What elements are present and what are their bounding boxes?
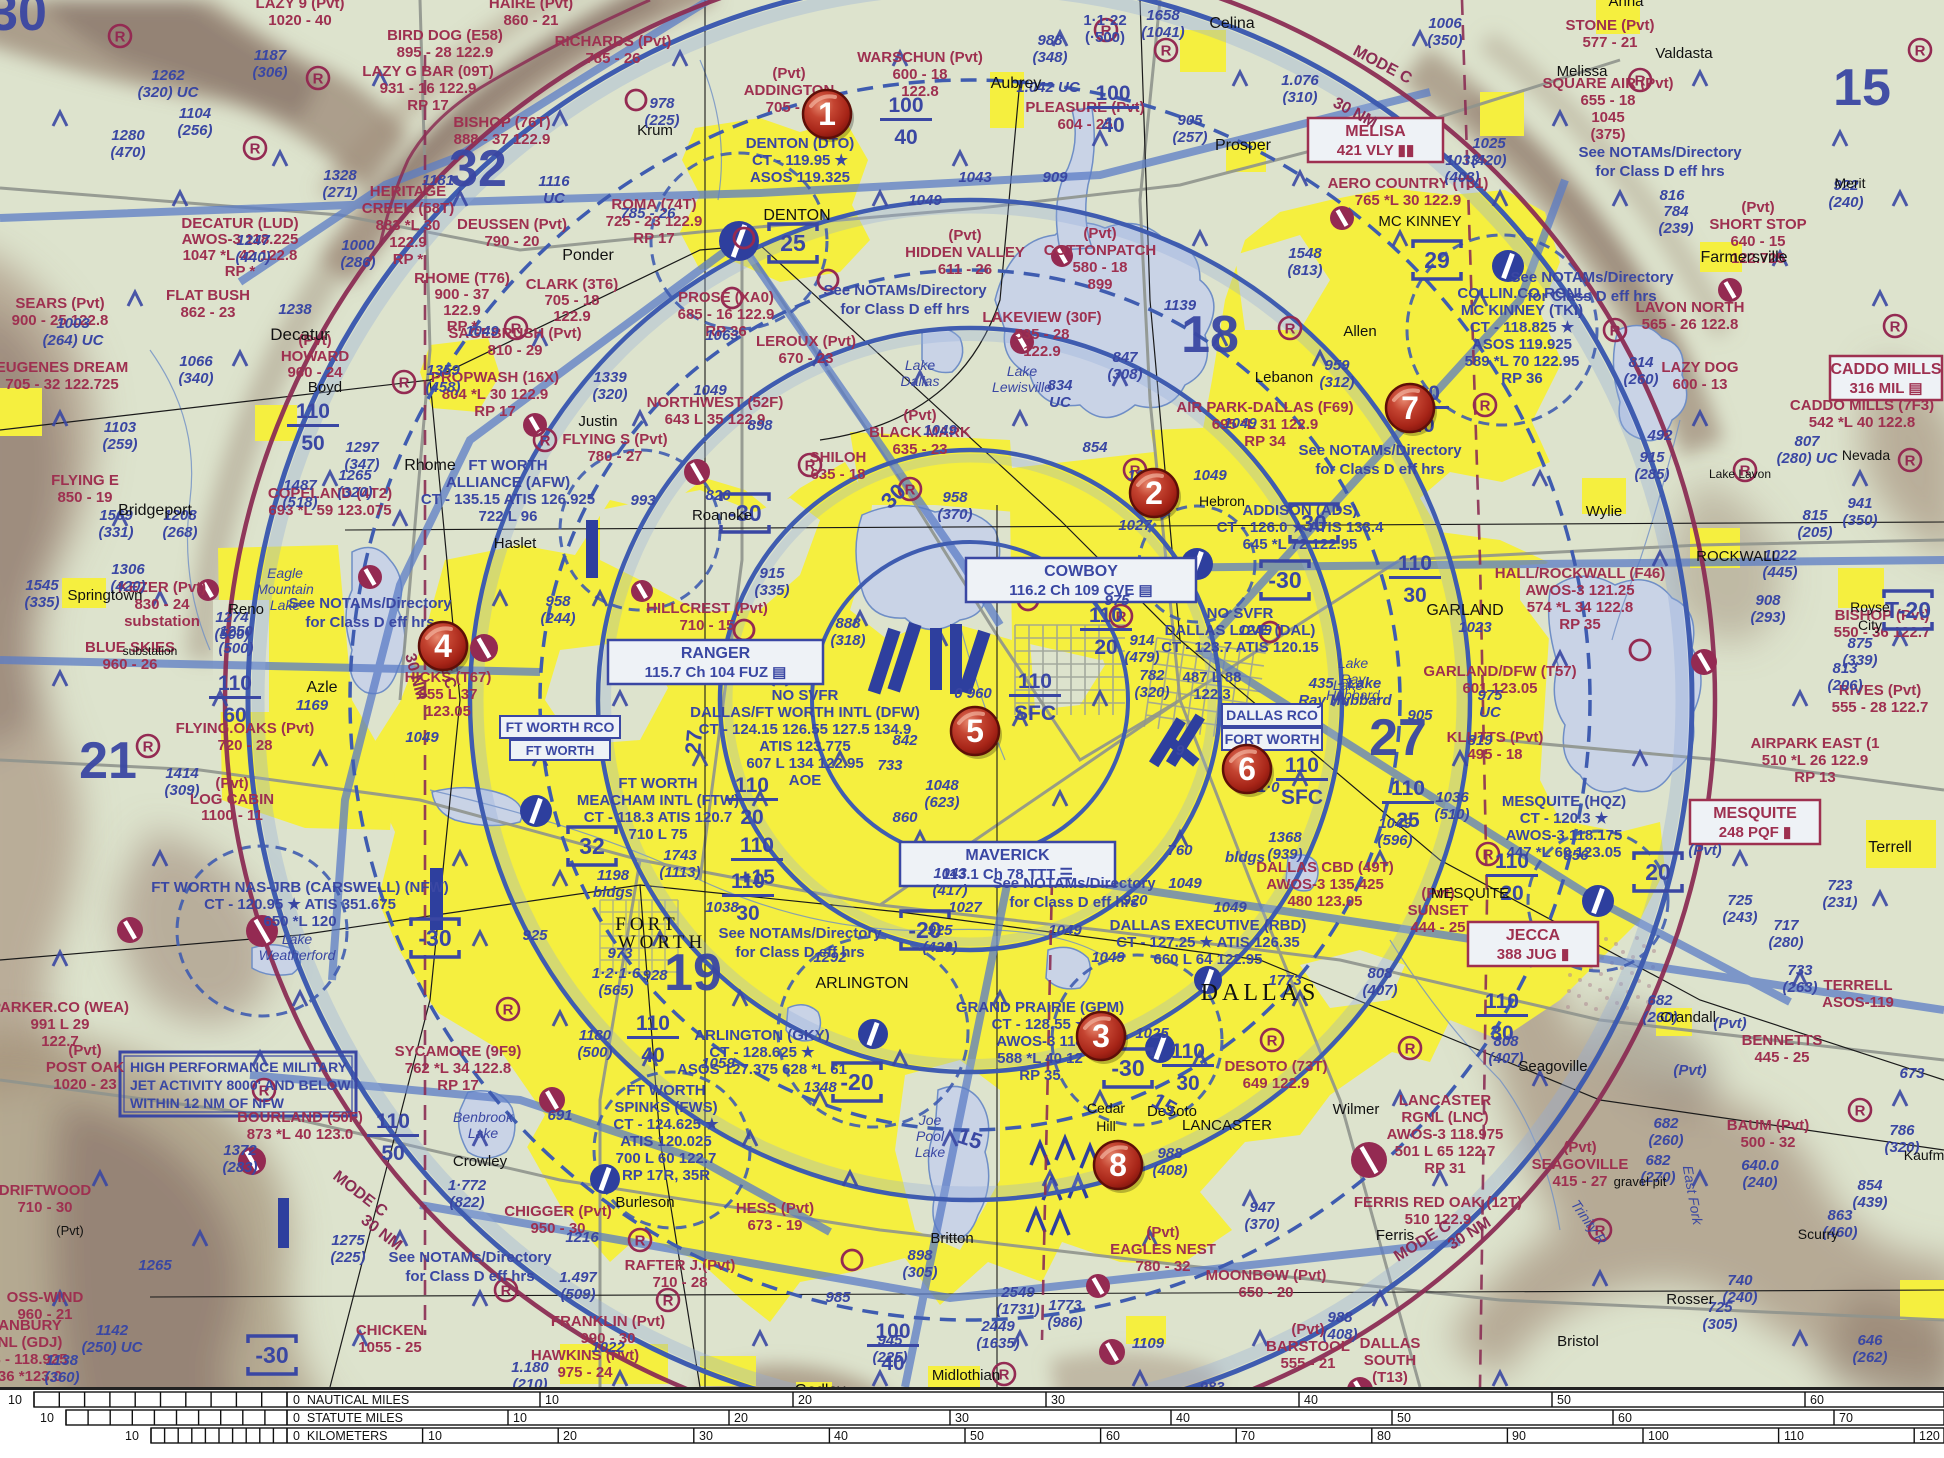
- svg-text:LAKEVIEW (30F): LAKEVIEW (30F): [982, 309, 1101, 326]
- svg-text:STONE (Pvt): STONE (Pvt): [1566, 17, 1655, 34]
- svg-text:DENTON: DENTON: [763, 207, 830, 224]
- svg-text:DESOTO (73T): DESOTO (73T): [1224, 1058, 1327, 1075]
- svg-text:COWBOY: COWBOY: [1044, 563, 1118, 580]
- svg-text:0 NAUTICAL MILES: 0 NAUTICAL MILES: [293, 1393, 409, 1407]
- svg-text:AIRPARK EAST (1: AIRPARK EAST (1: [1751, 735, 1880, 752]
- svg-text:(407): (407): [1362, 982, 1397, 999]
- svg-text:3: 3: [1092, 1018, 1110, 1054]
- svg-text:(260): (260): [1623, 371, 1658, 388]
- svg-text:100: 100: [888, 94, 923, 117]
- svg-text:Wilmer: Wilmer: [1333, 1101, 1380, 1118]
- svg-text:(822): (822): [449, 1194, 484, 1211]
- svg-text:AWOS-3 118.175: AWOS-3 118.175: [1506, 827, 1623, 844]
- svg-text:1049: 1049: [1223, 415, 1257, 432]
- svg-text:See NOTAMs/Directory: See NOTAMs/Directory: [718, 925, 882, 942]
- svg-text:RP 35: RP 35: [1019, 1067, 1060, 1084]
- svg-text:1049: 1049: [465, 323, 499, 340]
- svg-text:R: R: [1890, 319, 1901, 336]
- svg-text:RP 35: RP 35: [1559, 616, 1600, 633]
- svg-text:10: 10: [428, 1429, 442, 1443]
- svg-text:T-20: T-20: [1885, 597, 1931, 623]
- svg-text:SYCAMORE (9F9): SYCAMORE (9F9): [395, 1043, 522, 1060]
- svg-text:1249: 1249: [1238, 622, 1272, 639]
- svg-text:588 *L 40 12: 588 *L 40 12: [997, 1050, 1083, 1067]
- svg-text:685 - 16 122.9: 685 - 16 122.9: [678, 306, 775, 323]
- svg-text:(309): (309): [164, 782, 199, 799]
- svg-text:1187: 1187: [254, 47, 287, 64]
- svg-text:854: 854: [1857, 1177, 1883, 1194]
- svg-text:DALLAS/FT WORTH INTL (DFW): DALLAS/FT WORTH INTL (DFW): [690, 704, 920, 721]
- svg-text:941: 941: [1847, 495, 1872, 512]
- svg-text:1100 - 11: 1100 - 11: [201, 807, 263, 824]
- svg-text:1.497: 1.497: [559, 1269, 597, 1286]
- svg-text:(280) UC: (280) UC: [1777, 450, 1839, 467]
- svg-text:CADDO MILLS: CADDO MILLS: [1830, 361, 1941, 378]
- svg-text:501 L 65 122.7: 501 L 65 122.7: [1395, 1143, 1496, 1160]
- svg-text:1372: 1372: [223, 1142, 257, 1159]
- svg-text:AOE: AOE: [789, 772, 822, 789]
- svg-text:FERRIS RED OAK (12T): FERRIS RED OAK (12T): [1354, 1194, 1522, 1211]
- svg-text:1250: 1250: [219, 623, 253, 640]
- svg-text:(280): (280): [1768, 934, 1803, 951]
- svg-text:CT - 119.95 ★: CT - 119.95 ★: [752, 152, 849, 169]
- svg-text:Lake: Lake: [1338, 655, 1369, 671]
- svg-text:785 - 26: 785 - 26: [620, 205, 676, 222]
- svg-text:1049: 1049: [693, 382, 727, 399]
- svg-text:30: 30: [1176, 1072, 1199, 1095]
- svg-text:850 - 19: 850 - 19: [57, 489, 112, 506]
- svg-text:(318): (318): [830, 632, 865, 649]
- svg-text:(458): (458): [425, 379, 460, 396]
- svg-text:(Pvt): (Pvt): [1741, 199, 1774, 216]
- svg-text:60: 60: [1810, 1393, 1824, 1407]
- svg-text:110: 110: [1018, 670, 1052, 693]
- svg-text:780 - 32: 780 - 32: [1135, 1258, 1190, 1275]
- svg-text:25: 25: [1396, 809, 1420, 832]
- svg-text:WORTH: WORTH: [618, 932, 707, 953]
- svg-text:110: 110: [1285, 754, 1319, 777]
- svg-text:985: 985: [825, 1289, 851, 1306]
- svg-text:(596): (596): [1377, 832, 1412, 849]
- svg-text:HIGH PERFORMANCE MILITARY: HIGH PERFORMANCE MILITARY: [130, 1059, 348, 1075]
- svg-text:FT WORTH: FT WORTH: [626, 1082, 705, 1099]
- svg-text:50: 50: [381, 1142, 404, 1165]
- svg-text:bldgs: bldgs: [1225, 849, 1265, 866]
- svg-text:40: 40: [1304, 1393, 1318, 1407]
- svg-text:650 - 20: 650 - 20: [1238, 1284, 1293, 1301]
- svg-text:1049: 1049: [405, 729, 439, 746]
- svg-text:CT - 123.7 ATIS 120.15: CT - 123.7 ATIS 120.15: [1161, 639, 1319, 656]
- svg-text:646: 646: [1857, 1332, 1883, 1349]
- svg-text:819: 819: [1467, 732, 1493, 749]
- svg-text:(Pvt): (Pvt): [1713, 1015, 1746, 1032]
- svg-text:248 PQF ▮: 248 PQF ▮: [1719, 824, 1791, 841]
- svg-text:UC: UC: [1479, 704, 1502, 721]
- svg-text:(286): (286): [340, 254, 375, 271]
- svg-text:RGNL (LNC): RGNL (LNC): [1401, 1109, 1488, 1126]
- svg-text:915: 915: [1639, 449, 1665, 466]
- svg-text:898: 898: [747, 417, 773, 434]
- svg-text:FT WORTH: FT WORTH: [618, 775, 697, 792]
- svg-text:JET ACTIVITY 8000' AND BELOW: JET ACTIVITY 8000' AND BELOW: [130, 1077, 351, 1093]
- svg-text:10: 10: [125, 1429, 139, 1443]
- svg-text:RP 13: RP 13: [1794, 769, 1835, 786]
- svg-text:710 L 75: 710 L 75: [629, 826, 688, 843]
- svg-text:bldgs: bldgs: [593, 884, 633, 901]
- svg-text:1038: 1038: [705, 899, 739, 916]
- svg-text:RP 17: RP 17: [633, 230, 674, 247]
- svg-text:1487: 1487: [283, 477, 317, 494]
- svg-text:856: 856: [1563, 847, 1589, 864]
- svg-text:Scurry: Scurry: [1798, 1226, 1838, 1242]
- svg-text:EAGLES NEST: EAGLES NEST: [1110, 1241, 1216, 1258]
- svg-text:CT - 118.825 ★: CT - 118.825 ★: [1470, 319, 1575, 336]
- svg-text:MOONBOW (Pvt): MOONBOW (Pvt): [1206, 1267, 1327, 1284]
- svg-text:7: 7: [1401, 390, 1419, 426]
- svg-text:30: 30: [1051, 1393, 1065, 1407]
- svg-text:Aubrey: Aubrey: [991, 75, 1042, 92]
- svg-text:City: City: [1858, 617, 1882, 633]
- svg-text:0 960: 0 960: [954, 685, 992, 702]
- svg-text:LAZY DOG: LAZY DOG: [1661, 359, 1738, 376]
- svg-text:1548: 1548: [1288, 245, 1322, 262]
- svg-text:(T13): (T13): [1372, 1369, 1408, 1386]
- svg-text:HILLCREST (Pvt): HILLCREST (Pvt): [646, 600, 768, 617]
- svg-text:1103: 1103: [104, 419, 137, 436]
- svg-text:Terrell: Terrell: [1868, 839, 1912, 856]
- svg-text:535 - 28: 535 - 28: [1014, 326, 1069, 343]
- svg-text:(440): (440): [235, 249, 270, 266]
- svg-text:710 - 30: 710 - 30: [17, 1199, 72, 1216]
- svg-text:40: 40: [641, 1044, 664, 1067]
- svg-text:1049: 1049: [1048, 922, 1082, 939]
- svg-text:Lake: Lake: [282, 931, 313, 947]
- svg-text:RANGER: RANGER: [681, 645, 751, 662]
- svg-text:500 - 32: 500 - 32: [1740, 1134, 1795, 1151]
- svg-text:OSS-WIND: OSS-WIND: [7, 1289, 84, 1306]
- svg-text:0 KILOMETERS: 0 KILOMETERS: [293, 1429, 387, 1443]
- svg-text:SHILOH: SHILOH: [810, 449, 867, 466]
- svg-text:32: 32: [449, 140, 507, 198]
- svg-text:905: 905: [1177, 112, 1203, 129]
- svg-text:673 - 19: 673 - 19: [747, 1217, 802, 1234]
- svg-text:(244): (244): [540, 610, 575, 627]
- svg-text:90: 90: [1512, 1429, 1526, 1443]
- svg-text:Lake: Lake: [1007, 363, 1038, 379]
- svg-text:-30: -30: [255, 1342, 288, 1368]
- svg-text:110: 110: [1171, 1040, 1205, 1063]
- svg-text:(Pvt): (Pvt): [1688, 842, 1721, 859]
- svg-text:See NOTAMs/Directory: See NOTAMs/Directory: [288, 595, 452, 612]
- svg-text:(565): (565): [598, 982, 633, 999]
- svg-text:40: 40: [894, 126, 917, 149]
- svg-text:for Class D eff hrs: for Class D eff hrs: [840, 301, 969, 318]
- svg-text:1048: 1048: [925, 777, 959, 794]
- svg-text:(308): (308): [1107, 366, 1142, 383]
- svg-text:116.2 Ch 109 CVE ▤: 116.2 Ch 109 CVE ▤: [1009, 582, 1152, 599]
- svg-text:Prosper: Prosper: [1215, 137, 1272, 154]
- svg-text:645 *L 72 122.95: 645 *L 72 122.95: [1243, 536, 1358, 553]
- svg-text:10: 10: [8, 1393, 22, 1407]
- svg-text:20: 20: [798, 1393, 812, 1407]
- svg-text:(Pvt): (Pvt): [1563, 1139, 1596, 1156]
- svg-text:Wylie: Wylie: [1586, 503, 1623, 520]
- svg-text:ALLIANCE (AFW): ALLIANCE (AFW): [446, 474, 570, 491]
- svg-text:1043: 1043: [958, 169, 992, 186]
- svg-text:1: 1: [818, 96, 836, 132]
- svg-text:1006: 1006: [1428, 15, 1462, 32]
- svg-text:DALLAS RCO: DALLAS RCO: [1226, 707, 1318, 723]
- svg-text:100: 100: [1648, 1429, 1669, 1443]
- svg-text:1043: 1043: [933, 865, 967, 882]
- svg-text:682: 682: [1647, 992, 1673, 1009]
- svg-text:782: 782: [1139, 667, 1165, 684]
- svg-text:(264) UC: (264) UC: [43, 332, 105, 349]
- svg-text:1020 - 23: 1020 - 23: [53, 1076, 116, 1093]
- svg-text:Rhome: Rhome: [404, 457, 456, 474]
- svg-text:1297: 1297: [345, 439, 379, 456]
- svg-text:115.7 Ch 104 FUZ ▤: 115.7 Ch 104 FUZ ▤: [645, 664, 787, 681]
- svg-text:1055 - 25: 1055 - 25: [358, 1339, 421, 1356]
- svg-text:710 - 15: 710 - 15: [679, 617, 734, 634]
- svg-text:(271): (271): [322, 184, 357, 201]
- svg-text:50: 50: [301, 432, 324, 455]
- svg-text:814: 814: [1628, 354, 1654, 371]
- svg-text:740: 740: [1727, 1272, 1753, 1289]
- svg-text:60: 60: [223, 704, 246, 727]
- svg-text:ASOS 119.325: ASOS 119.325: [750, 169, 850, 186]
- svg-text:(320): (320): [592, 386, 627, 403]
- svg-text:914: 914: [1129, 632, 1155, 649]
- svg-text:CT - 135.15 ATIS 126.925: CT - 135.15 ATIS 126.925: [421, 491, 595, 508]
- svg-text:1328: 1328: [323, 167, 357, 184]
- svg-text:1348: 1348: [803, 1079, 837, 1096]
- svg-text:ROCKWALL: ROCKWALL: [1696, 548, 1780, 565]
- svg-text:20: 20: [1645, 859, 1671, 885]
- svg-text:RP *: RP *: [393, 251, 424, 268]
- svg-text:899: 899: [1087, 276, 1112, 293]
- svg-text:660 L 64 122.95: 660 L 64 122.95: [1154, 951, 1263, 968]
- svg-text:815: 815: [1802, 507, 1828, 524]
- svg-text:30: 30: [1301, 510, 1327, 536]
- svg-text:20: 20: [740, 806, 763, 829]
- svg-text:LANCASTER: LANCASTER: [1182, 1117, 1272, 1134]
- svg-text:BIRD DOG (E58): BIRD DOG (E58): [387, 27, 503, 44]
- svg-text:RP 17R, 35R: RP 17R, 35R: [622, 1167, 710, 1184]
- svg-text:MC KINNEY: MC KINNEY: [1378, 213, 1461, 230]
- svg-text:(986): (986): [1047, 1314, 1082, 1331]
- svg-text:Hebron: Hebron: [1199, 493, 1245, 509]
- svg-text:873 *L 40 123.0: 873 *L 40 123.0: [247, 1126, 353, 1143]
- svg-text:FT WORTH: FT WORTH: [526, 743, 595, 758]
- svg-text:(293): (293): [1750, 609, 1785, 626]
- svg-text:70: 70: [1839, 1411, 1853, 1425]
- svg-text:640 - 15: 640 - 15: [1730, 233, 1785, 250]
- svg-text:958: 958: [545, 593, 571, 610]
- svg-text:5: 5: [966, 713, 984, 749]
- svg-text:Azle: Azle: [306, 679, 337, 696]
- svg-text:555 - 28 122.7: 555 - 28 122.7: [1832, 699, 1929, 716]
- svg-text:1169: 1169: [296, 697, 329, 714]
- svg-text:SOUTH: SOUTH: [1364, 1352, 1417, 1369]
- svg-text:(335): (335): [754, 582, 789, 599]
- svg-text:R: R: [1915, 43, 1926, 60]
- svg-text:415 - 27: 415 - 27: [1552, 1173, 1607, 1190]
- svg-text:ARLINGTON (GKY): ARLINGTON (GKY): [694, 1027, 830, 1044]
- svg-text:2: 2: [1145, 475, 1163, 511]
- svg-text:R: R: [501, 1283, 512, 1300]
- svg-text:25: 25: [780, 230, 806, 256]
- svg-text:R: R: [1610, 323, 1621, 340]
- svg-text:CT - 120.3 ★: CT - 120.3 ★: [1520, 810, 1609, 827]
- svg-text:480 123.05: 480 123.05: [1287, 893, 1362, 910]
- svg-text:110: 110: [296, 400, 330, 423]
- svg-text:(320) UC: (320) UC: [138, 84, 200, 101]
- svg-text:R: R: [115, 29, 126, 46]
- svg-text:MESQUITE: MESQUITE: [1713, 805, 1797, 822]
- svg-text:FLYING E: FLYING E: [51, 472, 119, 489]
- svg-text:(360): (360): [44, 1369, 79, 1386]
- svg-text:1773: 1773: [1048, 1297, 1082, 1314]
- svg-text:(Pvt): (Pvt): [56, 1223, 83, 1238]
- svg-text:1063: 1063: [705, 327, 739, 344]
- svg-text:(285): (285): [1634, 466, 1669, 483]
- svg-text:(403): (403): [1444, 169, 1479, 186]
- svg-text:722 L 96: 722 L 96: [479, 508, 538, 525]
- svg-text:635 - 23: 635 - 23: [892, 441, 947, 458]
- svg-text:(1113): (1113): [659, 864, 700, 881]
- svg-text:40: 40: [834, 1429, 848, 1443]
- svg-text:842: 842: [892, 732, 918, 749]
- svg-text:ASOS-119: ASOS-119: [1822, 994, 1894, 1011]
- svg-text:110: 110: [1089, 604, 1123, 627]
- svg-text:20: 20: [1094, 636, 1117, 659]
- svg-text:Anna: Anna: [1608, 0, 1644, 10]
- svg-text:30: 30: [736, 902, 759, 925]
- svg-text:Lebanon: Lebanon: [1255, 369, 1313, 386]
- svg-text:substation: substation: [123, 644, 178, 658]
- svg-text:862 - 23: 862 - 23: [180, 304, 235, 321]
- svg-text:R: R: [399, 375, 410, 392]
- svg-text:10: 10: [40, 1411, 54, 1425]
- svg-text:931 - 16 122.9: 931 - 16 122.9: [380, 80, 477, 97]
- svg-text:(350): (350): [1427, 32, 1462, 49]
- svg-text:Celina: Celina: [1209, 15, 1254, 32]
- svg-text:574 *L 34 122.8: 574 *L 34 122.8: [1527, 599, 1633, 616]
- svg-text:MEACHAM INTL (FTW): MEACHAM INTL (FTW): [577, 792, 739, 809]
- svg-text:SPINKS (FWS): SPINKS (FWS): [614, 1099, 717, 1116]
- svg-text:975: 975: [1477, 687, 1503, 704]
- svg-text:Midlothian: Midlothian: [932, 1367, 1000, 1384]
- svg-text:895 - 28 122.9: 895 - 28 122.9: [397, 44, 494, 61]
- svg-text:Ray: Ray: [1341, 671, 1367, 687]
- svg-text:40: 40: [1101, 114, 1124, 137]
- svg-text:(939): (939): [1267, 846, 1302, 863]
- svg-text:R: R: [143, 739, 154, 756]
- svg-text:720 - 28: 720 - 28: [217, 737, 272, 754]
- svg-text:30: 30: [1490, 1022, 1513, 1045]
- svg-text:for Class D eff hrs: for Class D eff hrs: [405, 1268, 534, 1285]
- svg-text:DALLAS: DALLAS: [1201, 980, 1320, 1006]
- svg-text:898: 898: [907, 1247, 933, 1264]
- svg-text:RP 31: RP 31: [1424, 1160, 1465, 1177]
- svg-text:1025: 1025: [1135, 1025, 1169, 1042]
- svg-text:110: 110: [1485, 990, 1519, 1013]
- svg-text:CADDO MILLS (7F3): CADDO MILLS (7F3): [1790, 397, 1934, 414]
- svg-text:808: 808: [1367, 965, 1393, 982]
- svg-text:580 - 18: 580 - 18: [1072, 259, 1127, 276]
- svg-text:786: 786: [1889, 1122, 1915, 1139]
- svg-text:978: 978: [649, 95, 675, 112]
- svg-text:542 *L 40 122.8: 542 *L 40 122.8: [1809, 414, 1915, 431]
- svg-text:RP 17: RP 17: [474, 403, 515, 420]
- svg-text:(257): (257): [1172, 129, 1207, 146]
- svg-text:780 - 27: 780 - 27: [587, 448, 642, 465]
- svg-text:Springtown: Springtown: [67, 587, 142, 604]
- svg-text:RAFTER J.(Pvt): RAFTER J.(Pvt): [625, 1257, 736, 1274]
- svg-text:See NOTAMs/Directory: See NOTAMs/Directory: [388, 1249, 552, 1266]
- svg-text:SFC: SFC: [1014, 702, 1056, 725]
- svg-text:638 - 30: 638 - 30: [1047, 0, 1102, 4]
- svg-text:(Pvt): (Pvt): [1673, 1062, 1706, 1079]
- svg-text:900 - 37: 900 - 37: [434, 286, 489, 303]
- svg-text:R: R: [1161, 43, 1172, 60]
- svg-text:Lake: Lake: [915, 1144, 946, 1160]
- svg-text:Justin: Justin: [578, 413, 617, 430]
- svg-text:421 VLY ▮▮: 421 VLY ▮▮: [1337, 142, 1414, 159]
- svg-text:CREEK (58T): CREEK (58T): [362, 200, 455, 217]
- svg-text:-30: -30: [1268, 567, 1301, 593]
- svg-text:785 - 26: 785 - 26: [585, 50, 640, 67]
- svg-text:EUGENES DREAM: EUGENES DREAM: [0, 359, 128, 376]
- svg-text:993: 993: [630, 492, 656, 509]
- svg-text:717: 717: [1773, 917, 1799, 934]
- svg-text:(Pvt): (Pvt): [1291, 1321, 1324, 1338]
- svg-text:GARLAND: GARLAND: [1426, 602, 1503, 619]
- svg-text:MAVERICK: MAVERICK: [965, 847, 1050, 864]
- svg-text:(305): (305): [1702, 1316, 1737, 1333]
- svg-text:860: 860: [892, 809, 918, 826]
- svg-text:444 - 25: 444 - 25: [1410, 919, 1465, 936]
- svg-text:DEUSSEN (Pvt): DEUSSEN (Pvt): [457, 216, 567, 233]
- svg-text:650 *L 120: 650 *L 120: [263, 913, 336, 930]
- svg-text:1116: 1116: [538, 173, 570, 190]
- svg-text:PARKER.CO (WEA): PARKER.CO (WEA): [0, 999, 129, 1016]
- svg-text:DALLAS: DALLAS: [1360, 1335, 1421, 1352]
- svg-text:(348): (348): [1032, 49, 1067, 66]
- svg-text:See NOTAMs/Directory: See NOTAMs/Directory: [1510, 269, 1674, 286]
- svg-text:LAZY G BAR (09T): LAZY G BAR (09T): [362, 63, 493, 80]
- svg-text:Boyd: Boyd: [308, 379, 342, 396]
- svg-text:(·500): (·500): [1085, 29, 1125, 46]
- svg-text:KLUTTS (Pvt): KLUTTS (Pvt): [1447, 729, 1544, 746]
- svg-text:110: 110: [636, 1012, 670, 1035]
- svg-text:NO SVFR: NO SVFR: [1207, 605, 1274, 622]
- svg-text:Dallas: Dallas: [901, 373, 940, 389]
- svg-text:(340): (340): [178, 370, 213, 387]
- svg-text:0 STATUTE MILES: 0 STATUTE MILES: [293, 1411, 403, 1425]
- svg-text:(370): (370): [1244, 1216, 1279, 1233]
- svg-text:R: R: [313, 71, 324, 88]
- svg-text:790 - 20: 790 - 20: [484, 233, 539, 250]
- svg-text:Merit: Merit: [1834, 175, 1865, 191]
- svg-text:909: 909: [1042, 169, 1068, 186]
- svg-text:Haslet: Haslet: [494, 535, 537, 552]
- svg-text:RP 34: RP 34: [1244, 433, 1286, 450]
- svg-text:R: R: [1285, 321, 1296, 338]
- svg-text:(420): (420): [1471, 152, 1506, 169]
- svg-text:958: 958: [942, 489, 968, 506]
